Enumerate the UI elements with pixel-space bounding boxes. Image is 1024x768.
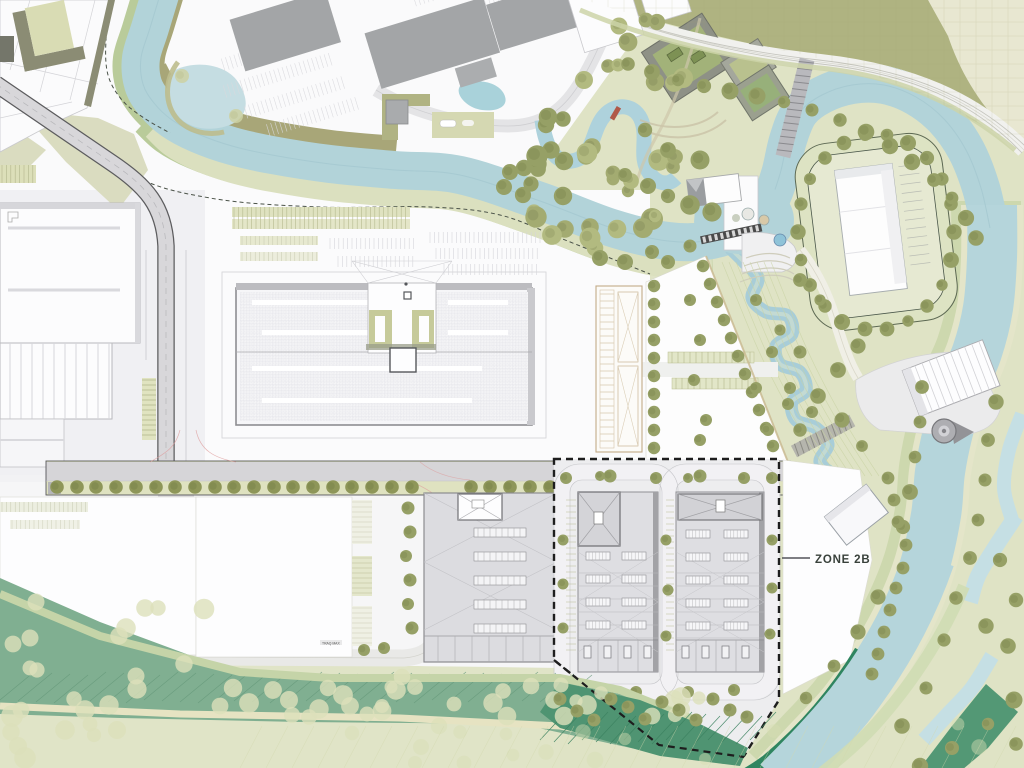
- svg-text:ZONE 2B: ZONE 2B: [815, 554, 870, 566]
- svg-text:TRAQ MAX: TRAQ MAX: [322, 642, 340, 646]
